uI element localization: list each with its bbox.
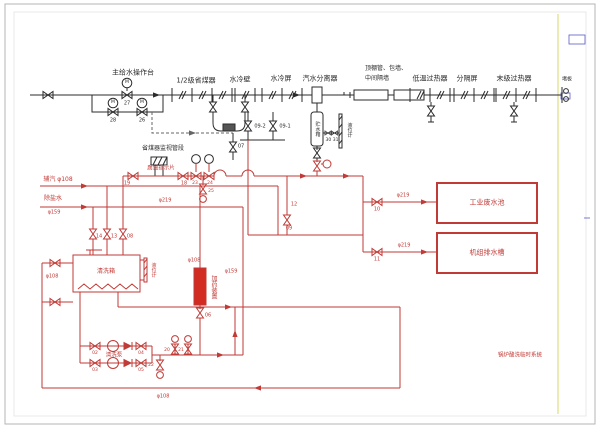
valve-07 (230, 133, 237, 160)
wash-pump-group (80, 292, 243, 369)
monitor-feed-line (152, 112, 233, 133)
feedwater-operation-valves (92, 78, 163, 115)
water-wall-lower-header (210, 95, 249, 131)
tank-left-stubs (42, 260, 73, 389)
monitor-pipe-piece (151, 157, 167, 176)
recirculation-lines (42, 292, 400, 391)
drain-valve-09-line (248, 176, 363, 235)
aux-steam-line (40, 183, 278, 235)
wash-tank-level-gauge (140, 258, 147, 282)
pressure-gauges-23-24 (192, 155, 214, 164)
storage-tank-drain-valve (314, 160, 332, 176)
blank-plate-symbol (560, 87, 568, 103)
wash-tank-symbol (73, 250, 140, 292)
pid-drawing-canvas: 主给水操作台 1/2级省煤器 水冷壁 水冷屏 汽水分离器 顶棚管、包墙、 中间隔… (0, 0, 600, 428)
right-branch-lines (363, 176, 437, 256)
steam-separator-symbol (311, 87, 350, 146)
tank-feed-valves (90, 176, 127, 255)
waste-pool-box (437, 183, 537, 223)
final-superheater-symbol (496, 88, 536, 122)
diagram-linework (0, 0, 600, 428)
discharge-instruments (157, 336, 192, 379)
unit-drain-tank-box (437, 233, 537, 273)
dosing-device-symbol (194, 186, 206, 355)
drain-valves-09 (240, 112, 285, 140)
drain-header (123, 163, 363, 202)
